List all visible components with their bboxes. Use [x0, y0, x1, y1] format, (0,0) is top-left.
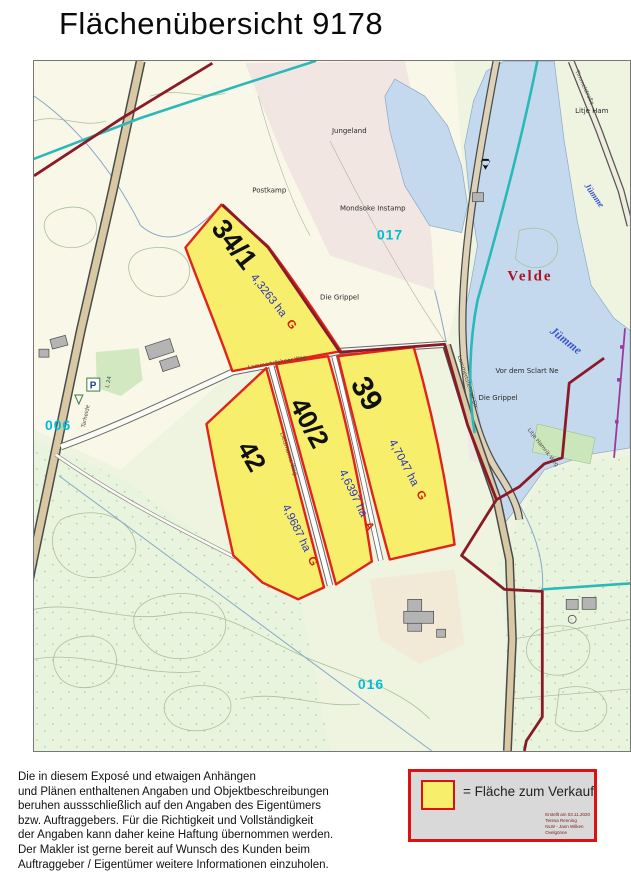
place-vor-dem-sclart: Vor dem Sclart Ne [495, 367, 558, 375]
page-title: Flächenübersicht 9178 [59, 6, 383, 42]
stamp-line: Ovelgönne [545, 830, 590, 836]
disclaimer-line: bzw. Auftraggebers. Für die Richtigkeit … [18, 814, 403, 829]
disclaimer-line: Auftraggeber / Eigentümer weitere Inform… [18, 858, 403, 873]
place-die-grippel-1: Die Grippel [320, 293, 359, 301]
legend-label: = Fläche zum Verkauf [463, 784, 594, 799]
town-velde: Velde [507, 268, 552, 284]
legend-stamp: Erstellt am 03.11.2020 Teresa Renning NL… [545, 812, 590, 836]
disclaimer-line: und Plänen enthaltenen Angaben und Objek… [18, 785, 403, 800]
disclaimer-line: Die in diesem Exposé und etwaigen Anhäng… [18, 770, 403, 785]
sale-area-swatch [421, 780, 455, 810]
flur-016: 016 [358, 676, 384, 692]
flur-017: 017 [377, 227, 403, 243]
disclaimer-line: Der Makler ist gerne bereit auf Wunsch d… [18, 843, 403, 858]
disclaimer-line: beruhen aussschließlich auf den Angaben … [18, 799, 403, 814]
legend-box: = Fläche zum Verkauf Erstellt am 03.11.2… [408, 769, 597, 842]
disclaimer-text: Die in diesem Exposé und etwaigen Anhäng… [18, 770, 403, 872]
svg-text:P: P [90, 381, 97, 392]
river-label-juemme-2: Jümme [582, 180, 606, 209]
place-jungeland: Jungeland [331, 127, 367, 135]
map-svg: P 34/1 39 40/2 42 4,3263 haG 4,7047 haG … [34, 61, 630, 751]
cadastral-map: P 34/1 39 40/2 42 4,3263 haG 4,7047 haG … [33, 60, 631, 752]
disclaimer-line: der Angaben kann daher keine Haftung übe… [18, 828, 403, 843]
place-postkamp: Postkamp [252, 187, 287, 195]
place-mondsoke: Mondsoke Instamp [340, 205, 406, 213]
place-litje-ham: Litje Ham [575, 107, 609, 115]
place-die-grippel-2: Die Grippel [479, 394, 518, 402]
flur-006: 006 [45, 417, 71, 433]
